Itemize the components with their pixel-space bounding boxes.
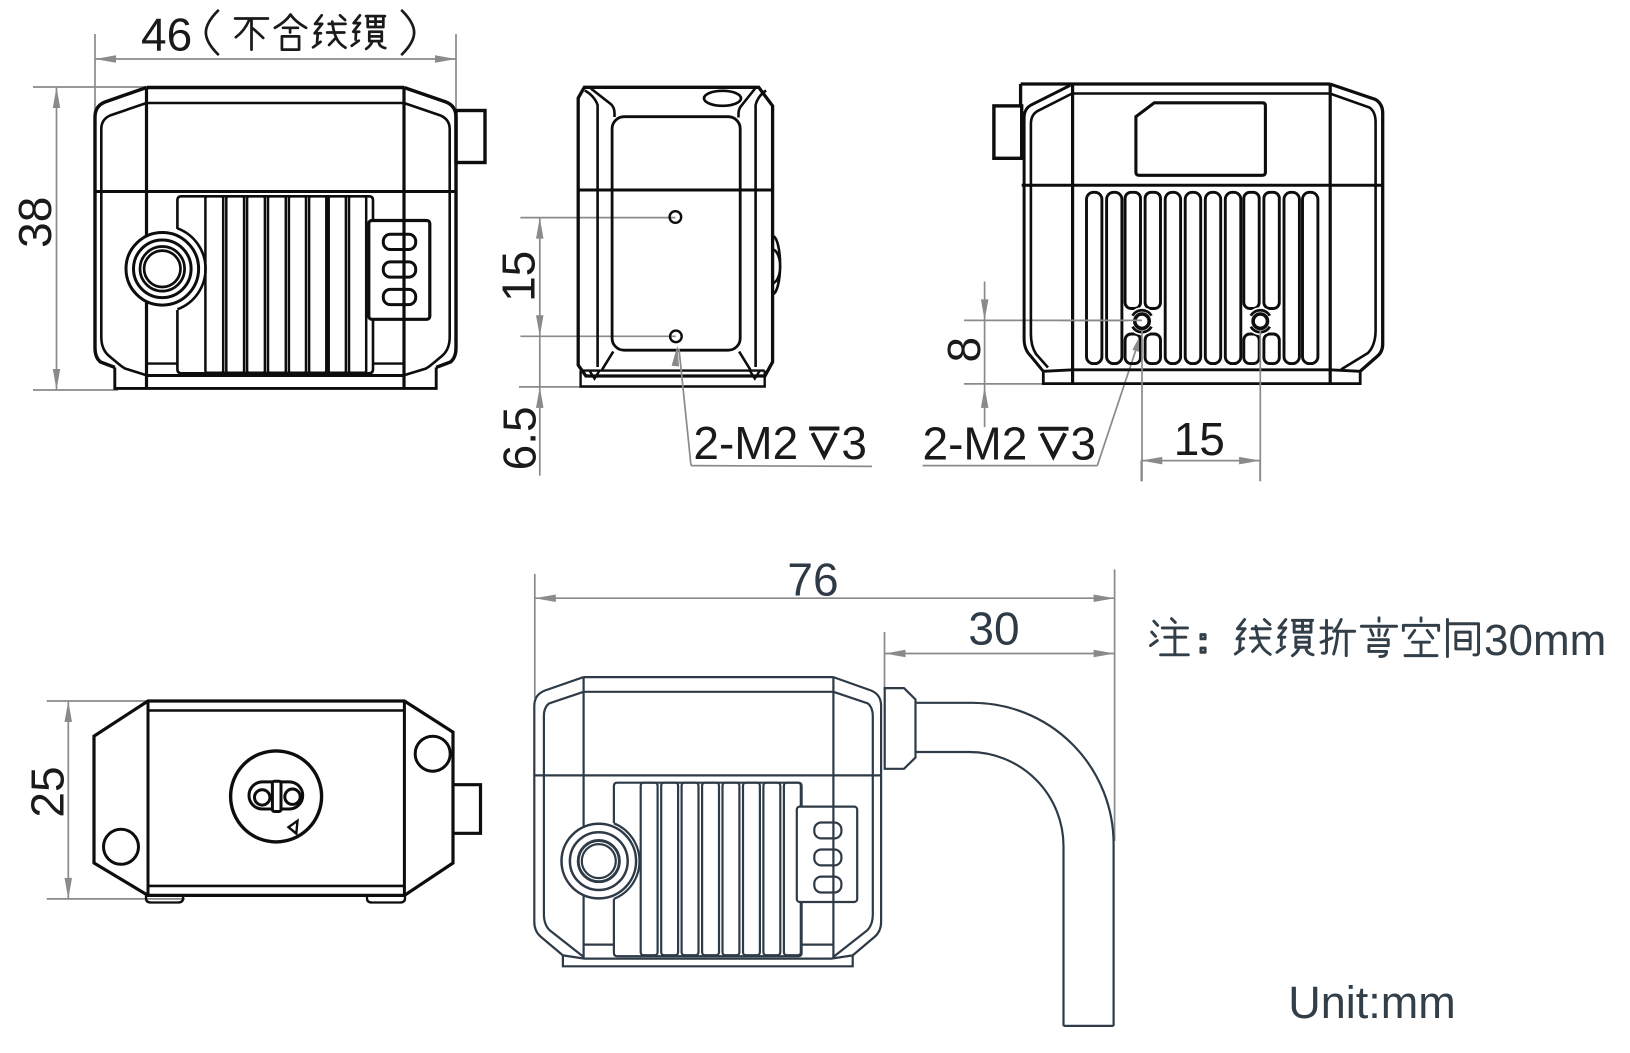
- svg-text:2-M2: 2-M2: [923, 418, 1028, 470]
- svg-text:8: 8: [938, 337, 990, 363]
- svg-text:25: 25: [21, 766, 73, 817]
- svg-text:30mm: 30mm: [1484, 616, 1606, 665]
- svg-text:6.5: 6.5: [494, 406, 546, 470]
- svg-text:Unit:mm: Unit:mm: [1288, 977, 1456, 1028]
- svg-text:3: 3: [841, 417, 867, 469]
- svg-text:2-M2: 2-M2: [693, 417, 798, 469]
- svg-text:46: 46: [141, 9, 192, 61]
- svg-text:30: 30: [968, 602, 1019, 654]
- svg-text:3: 3: [1071, 418, 1097, 470]
- svg-text:15: 15: [493, 251, 545, 302]
- svg-text:76: 76: [787, 554, 838, 606]
- svg-text:38: 38: [9, 197, 61, 248]
- svg-text:15: 15: [1174, 413, 1225, 465]
